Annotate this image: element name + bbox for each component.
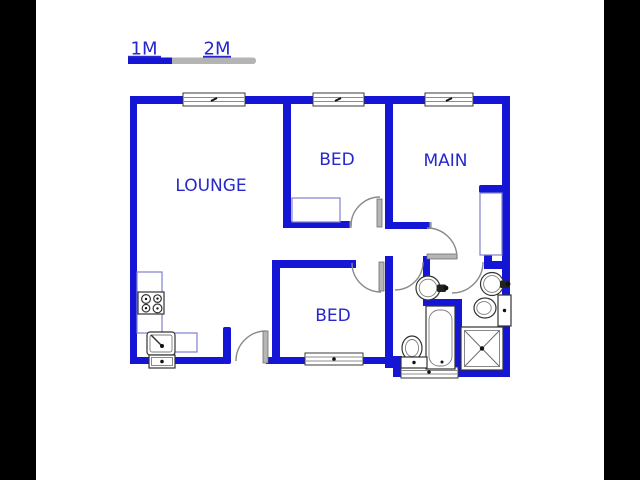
wall-main-south — [385, 222, 430, 229]
wall-bed-lower-west — [272, 260, 280, 364]
bathtub-icon — [426, 306, 455, 369]
wall-main-wardrobe-stub — [479, 185, 510, 193]
window-main — [425, 93, 473, 106]
kitchen-sink-icon — [147, 332, 175, 368]
room-label-bed-top: BED — [319, 150, 355, 170]
floor-plan-viewer: 1M 2M — [0, 0, 640, 480]
wall-exterior-bottom-kitchen — [130, 357, 224, 364]
right-pillarbox — [604, 0, 640, 480]
floor-plan-canvas: 1M 2M — [0, 0, 640, 480]
window-bed-lower — [305, 353, 363, 365]
window-bed-top — [313, 93, 364, 106]
window-lounge — [183, 93, 245, 106]
stove-icon — [138, 292, 164, 314]
wall-ensuite-north — [484, 261, 510, 269]
shower-icon — [461, 327, 503, 370]
wall-lounge-bed-divider — [283, 96, 291, 228]
wall-kitchen-door-jamb — [223, 327, 231, 364]
scale-label-1m: 1M — [131, 39, 158, 60]
wall-bed-lower-east — [385, 256, 393, 368]
scale-label-2m: 2M — [204, 39, 231, 60]
wall-bed-main-divider — [385, 96, 393, 229]
room-label-main: MAIN — [423, 151, 467, 171]
closet — [292, 198, 340, 222]
paper-background — [0, 0, 640, 480]
wall-exterior-left — [130, 96, 137, 364]
wall-bed-lower-north — [272, 260, 356, 268]
wardrobe — [480, 193, 502, 255]
room-label-lounge: LOUNGE — [175, 176, 246, 196]
room-label-bed-lower: BED — [315, 306, 351, 326]
left-pillarbox — [0, 0, 36, 480]
